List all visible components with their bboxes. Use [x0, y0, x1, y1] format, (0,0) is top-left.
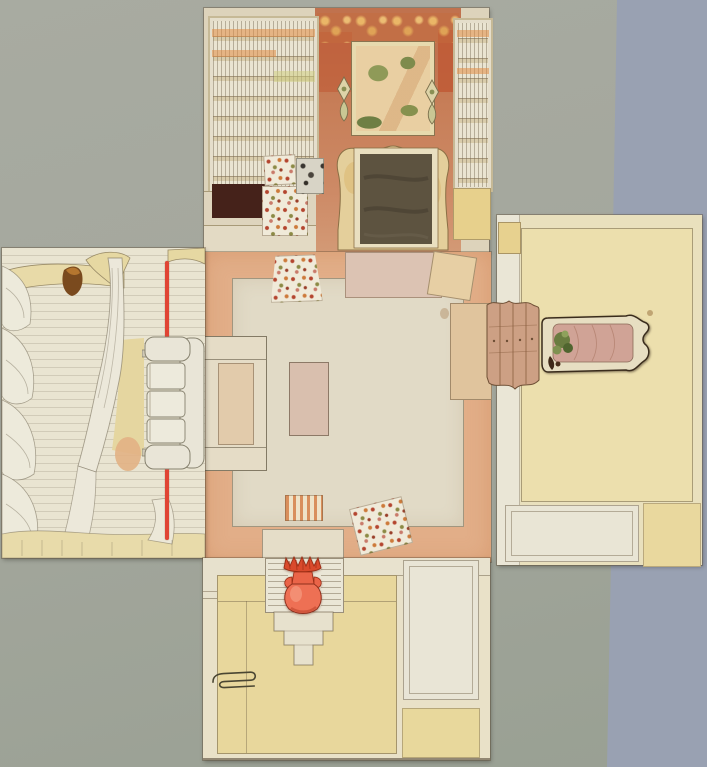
pencil-sketch-scrap [296, 158, 324, 194]
yellow-dado-panel [643, 503, 701, 567]
stepped-pedestal [273, 611, 334, 666]
white-sofa [142, 336, 206, 470]
dark-cupboard-opening [212, 184, 269, 218]
table-footprint [289, 362, 329, 436]
panel-inner-outline [409, 566, 473, 694]
bookcase-right-base [453, 188, 491, 240]
wall-sconce-left [335, 75, 353, 123]
photo-of-paper-model [0, 0, 707, 767]
floor-panel [204, 252, 491, 562]
yellow-dado-square [402, 708, 480, 758]
paper-clip [208, 669, 261, 694]
back-wall-panel [204, 8, 489, 254]
footprint-line [204, 359, 266, 360]
shelf-tint [457, 68, 489, 74]
red-urn [279, 554, 327, 616]
front-wall-panel [203, 558, 490, 760]
white-dado-panel [505, 505, 639, 562]
wall-sconce-right [423, 78, 441, 126]
landscape-picture [352, 42, 434, 135]
gilt-frieze [317, 13, 459, 43]
floral-seat-cutout-top [269, 254, 323, 303]
fireplace [330, 138, 456, 252]
white-dado-panel [403, 560, 479, 700]
pier-glass-cutout [540, 312, 652, 378]
panel-inner-outline [511, 511, 633, 556]
red-cord-upper [165, 261, 169, 341]
shelf-tint [212, 50, 276, 57]
left-wall-panel [2, 248, 205, 558]
footprint-line [204, 447, 266, 448]
striped-footstool-piece [285, 495, 323, 521]
bookcase-right [453, 18, 493, 192]
red-cord-lower [165, 464, 169, 540]
shelf-tint [274, 71, 315, 82]
book-rows [458, 23, 488, 187]
yellow-corner-tab [498, 222, 521, 254]
shelf-tint [457, 30, 489, 37]
footprint-cushion [218, 363, 254, 445]
floral-chintz-cutout [263, 154, 297, 186]
shelf-tint [212, 29, 315, 37]
plain-tilted-card [427, 251, 477, 301]
chest-of-drawers-cutout [485, 297, 541, 393]
stain-spot [440, 308, 449, 319]
sofa-footprint-outline [203, 336, 267, 471]
